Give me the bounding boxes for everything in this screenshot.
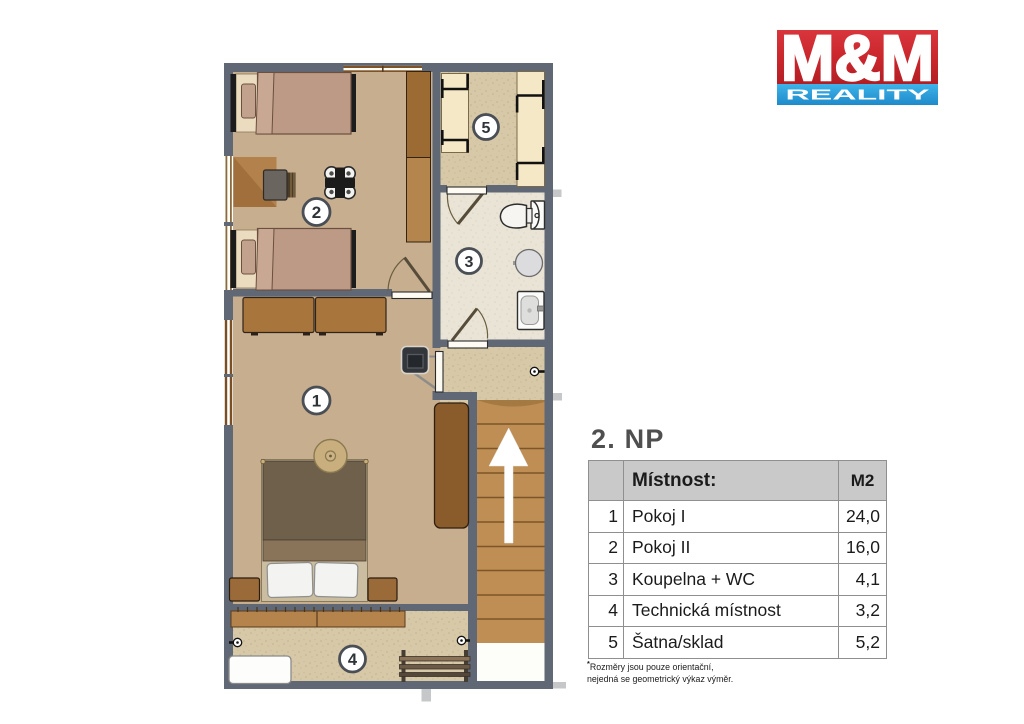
svg-text:3: 3 bbox=[465, 254, 474, 271]
svg-text:2: 2 bbox=[312, 203, 321, 222]
svg-text:REALITY: REALITY bbox=[786, 88, 931, 104]
svg-text:1: 1 bbox=[312, 392, 321, 411]
svg-text:M&M: M&M bbox=[781, 30, 934, 94]
svg-text:5: 5 bbox=[482, 120, 491, 137]
svg-text:4: 4 bbox=[348, 651, 358, 669]
